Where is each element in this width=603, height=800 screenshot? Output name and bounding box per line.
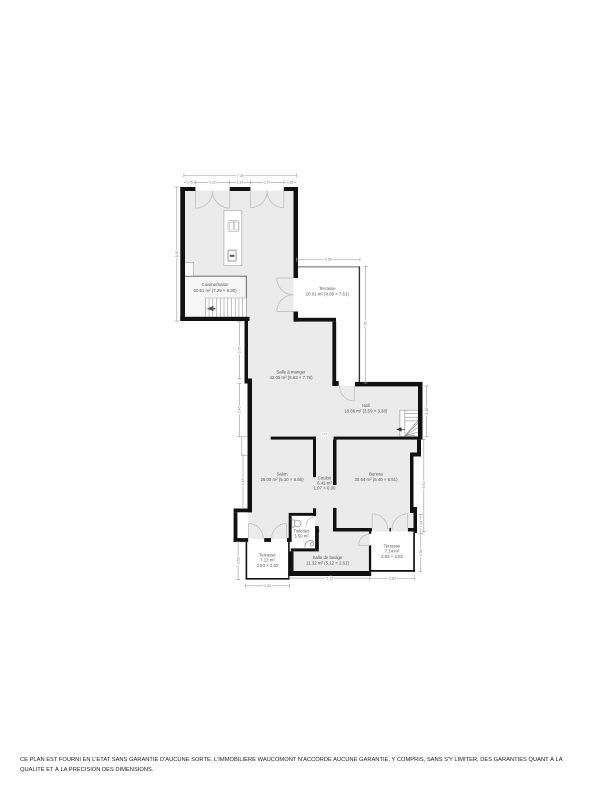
svg-text:3.76: 3.76 — [238, 347, 242, 354]
svg-text:1.34: 1.34 — [237, 181, 243, 185]
svg-text:18.86 m² (3.59 × 3.38): 18.86 m² (3.59 × 3.38) — [344, 409, 388, 414]
svg-text:3.48: 3.48 — [241, 479, 245, 486]
svg-text:3.46: 3.46 — [238, 407, 242, 414]
svg-text:0.82: 0.82 — [287, 181, 293, 185]
svg-text:30.64 m² (5.40 × 6.51): 30.64 m² (5.40 × 6.51) — [354, 477, 398, 482]
svg-text:3.50 m²: 3.50 m² — [294, 534, 309, 539]
svg-text:7.29: 7.29 — [237, 174, 244, 178]
svg-text:1.24: 1.24 — [419, 521, 423, 528]
svg-text:1.07 × 6.00: 1.07 × 6.00 — [314, 485, 336, 490]
svg-text:2.83 × 2.52: 2.83 × 2.52 — [381, 554, 403, 559]
svg-text:8.30: 8.30 — [175, 251, 179, 258]
svg-text:2.83: 2.83 — [264, 584, 271, 588]
svg-text:2.83: 2.83 — [389, 577, 396, 581]
svg-text:Terrasse: Terrasse — [319, 286, 336, 291]
svg-text:7.61: 7.61 — [364, 321, 368, 328]
svg-text:5.12: 5.12 — [326, 576, 333, 580]
svg-text:Salle à manger: Salle à manger — [276, 370, 306, 375]
svg-text:42.05 m² (5.63 × 7.78): 42.05 m² (5.63 × 7.78) — [269, 375, 313, 380]
svg-text:0.75: 0.75 — [187, 181, 193, 185]
svg-text:2.17: 2.17 — [264, 181, 270, 185]
svg-text:2.52: 2.52 — [419, 549, 423, 556]
svg-text:Salle de lavage: Salle de lavage — [313, 555, 343, 560]
svg-text:4.08: 4.08 — [325, 258, 332, 262]
svg-text:6.51: 6.51 — [422, 482, 426, 489]
svg-text:2.52: 2.52 — [236, 557, 240, 564]
svg-text:26.00 m² (5.10 × 6.56): 26.00 m² (5.10 × 6.56) — [260, 477, 304, 482]
svg-text:11.32 m² (5.12 × 2.61): 11.32 m² (5.12 × 2.61) — [306, 561, 349, 566]
svg-text:1.07: 1.07 — [322, 432, 328, 436]
svg-text:60.51 m² (7.29 × 8.30): 60.51 m² (7.29 × 8.30) — [193, 288, 237, 293]
svg-text:Bureau: Bureau — [369, 471, 384, 476]
svg-text:2.83 × 2.52: 2.83 × 2.52 — [257, 563, 279, 568]
svg-text:20.01 m² (4.08 × 7.61): 20.01 m² (4.08 × 7.61) — [306, 292, 350, 297]
svg-text:Cuisine/Salon: Cuisine/Salon — [202, 282, 229, 287]
svg-text:Salon: Salon — [276, 471, 288, 476]
svg-text:3.38: 3.38 — [425, 408, 429, 415]
svg-text:Hall: Hall — [362, 403, 370, 408]
svg-text:2.22: 2.22 — [209, 181, 215, 185]
